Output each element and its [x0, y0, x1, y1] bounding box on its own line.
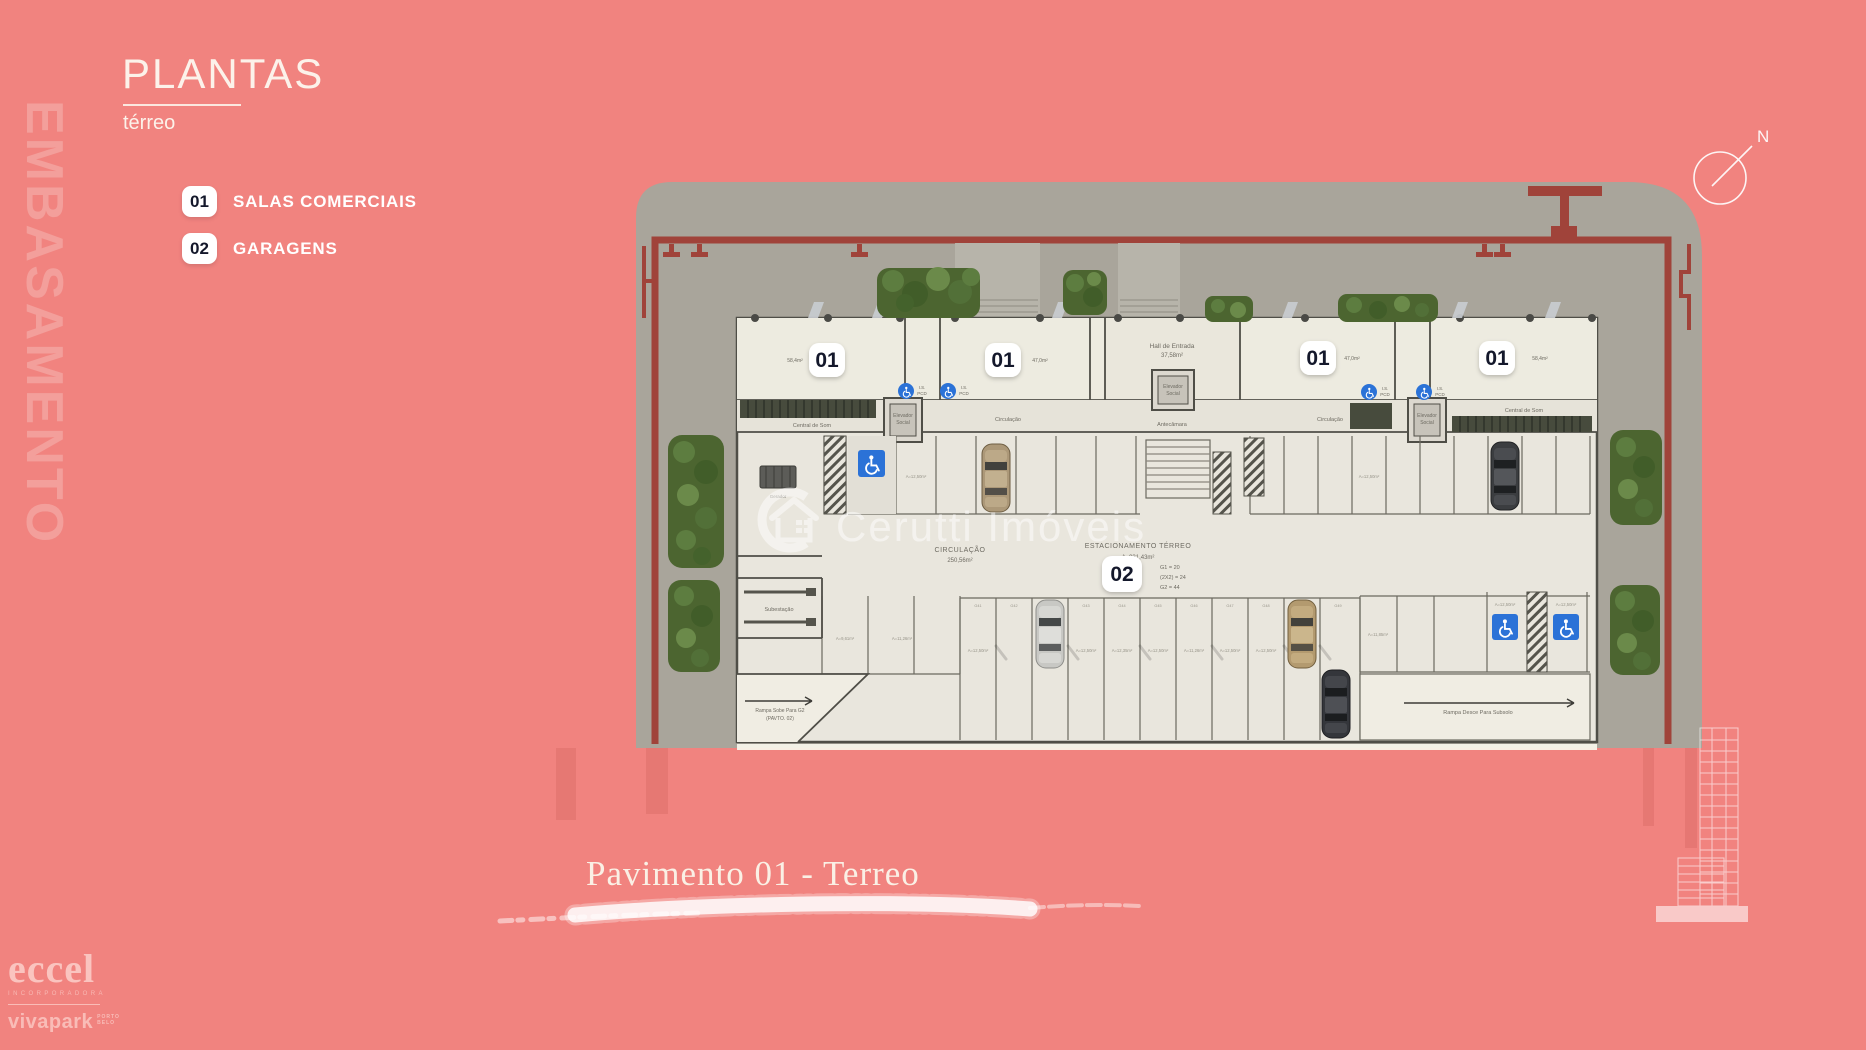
- generator-equipment: [760, 466, 796, 488]
- building-base-highlight: [737, 744, 1597, 750]
- foundation-pillars: [556, 748, 1697, 848]
- vivapark-wordmark: vivapark: [8, 1011, 93, 1034]
- plan-caption: Pavimento 01 - Terreo: [586, 854, 920, 894]
- svg-text:58,4m²: 58,4m²: [1532, 356, 1548, 362]
- svg-text:Antecâmara: Antecâmara: [1157, 422, 1188, 428]
- caption-brush-stroke: [500, 904, 1140, 921]
- svg-text:G42: G42: [1010, 604, 1017, 608]
- svg-text:PCD: PCD: [917, 391, 927, 396]
- svg-text:250,56m²: 250,56m²: [947, 558, 972, 564]
- vivapark-location: PORTO BELO: [97, 1014, 120, 1026]
- plantas-page: EMBASAMENTO PLANTAS térreo 01 SALAS COME…: [0, 0, 1866, 1050]
- car: [1491, 442, 1519, 510]
- branding-block: eccel INCORPORADORA vivapark PORTO BELO: [8, 950, 118, 1034]
- ramp-down: [1360, 674, 1590, 740]
- svg-text:G2 = 44: G2 = 44: [1160, 585, 1180, 591]
- svg-text:58,4m²: 58,4m²: [787, 358, 803, 364]
- svg-text:Elevador: Elevador: [1163, 384, 1183, 390]
- svg-text:A=12,50m²: A=12,50m²: [1359, 474, 1380, 479]
- svg-text:47,0m²: 47,0m²: [1032, 358, 1048, 364]
- svg-text:47,0m²: 47,0m²: [1344, 356, 1360, 362]
- svg-text:Elevador: Elevador: [1417, 413, 1437, 419]
- svg-text:G43: G43: [1082, 604, 1089, 608]
- svg-text:Social: Social: [1166, 391, 1180, 397]
- svg-text:A=12,50m²: A=12,50m²: [1220, 648, 1241, 653]
- car: [1322, 670, 1350, 738]
- svg-text:(PAVTO. 02): (PAVTO. 02): [766, 716, 794, 722]
- unit-badge-01: 01: [1485, 347, 1509, 370]
- svg-text:Circulação: Circulação: [1317, 417, 1343, 423]
- svg-text:G47: G47: [1226, 604, 1233, 608]
- svg-text:Hall de Entrada: Hall de Entrada: [1150, 343, 1195, 350]
- svg-text:G44: G44: [1118, 604, 1125, 608]
- compass-icon: N: [1694, 127, 1769, 204]
- svg-text:A=11,26m²: A=11,26m²: [1184, 648, 1205, 653]
- svg-text:PCD: PCD: [1380, 392, 1390, 397]
- svg-text:Rampa Sobe Para G2: Rampa Sobe Para G2: [755, 708, 804, 714]
- svg-text:I.S.: I.S.: [1437, 386, 1444, 391]
- svg-text:G1 = 20: G1 = 20: [1160, 565, 1180, 571]
- floor-plan: Hall de Entrada 37,58m² Elevador Social …: [0, 0, 1866, 1050]
- svg-text:Subestação: Subestação: [764, 607, 793, 613]
- svg-text:G46: G46: [1190, 604, 1197, 608]
- vivapark-logo: vivapark PORTO BELO: [8, 1011, 118, 1034]
- svg-text:A=12,50m²: A=12,50m²: [1076, 648, 1097, 653]
- tower-sketch: [1656, 728, 1748, 922]
- svg-text:Rampa Desce Para Subsolo: Rampa Desce Para Subsolo: [1443, 710, 1512, 716]
- svg-text:A=12,50m²: A=12,50m²: [968, 648, 989, 653]
- eccel-tagline: INCORPORADORA: [8, 991, 118, 997]
- svg-text:G45: G45: [1154, 604, 1161, 608]
- svg-text:Central de Som: Central de Som: [793, 423, 832, 429]
- svg-text:A=12,50m²: A=12,50m²: [1256, 648, 1277, 653]
- svg-text:I.S.: I.S.: [919, 385, 926, 390]
- eccel-logo: eccel: [8, 950, 118, 988]
- compass-north-label: N: [1757, 127, 1769, 146]
- svg-text:Social: Social: [896, 420, 910, 426]
- svg-text:A=12,35m²: A=12,35m²: [1112, 648, 1133, 653]
- car: [1036, 600, 1064, 668]
- brand-divider: [8, 1004, 100, 1005]
- svg-text:A=12,50m²: A=12,50m²: [1148, 648, 1169, 653]
- svg-text:Central de Som: Central de Som: [1505, 408, 1544, 414]
- garage-badge-02: 02: [1110, 563, 1133, 586]
- unit-badge-01: 01: [1306, 347, 1330, 370]
- svg-text:G48: G48: [1262, 604, 1269, 608]
- svg-text:A=11,26m²: A=11,26m²: [892, 636, 913, 641]
- svg-text:A=11,85m²: A=11,85m²: [1368, 632, 1389, 637]
- svg-text:Social: Social: [1420, 420, 1434, 426]
- car: [1288, 600, 1316, 668]
- svg-text:37,58m²: 37,58m²: [1161, 353, 1183, 359]
- svg-text:A=9,61m²: A=9,61m²: [836, 636, 855, 641]
- svg-text:A=12,50m²: A=12,50m²: [1556, 602, 1577, 607]
- svg-text:PCD: PCD: [959, 391, 969, 396]
- svg-text:A=12,50m²: A=12,50m²: [1495, 602, 1516, 607]
- svg-text:G49: G49: [1334, 604, 1341, 608]
- svg-text:Circulação: Circulação: [995, 417, 1021, 423]
- svg-text:I.S.: I.S.: [1382, 386, 1389, 391]
- unit-badge-01: 01: [815, 349, 839, 372]
- svg-text:A=12,50m²: A=12,50m²: [906, 474, 927, 479]
- svg-text:G41: G41: [974, 604, 981, 608]
- car: [982, 444, 1010, 512]
- svg-text:I.S.: I.S.: [961, 385, 968, 390]
- vivapark-location-line2: BELO: [97, 1020, 115, 1026]
- cerutti-watermark-text: Cerutti Imóveis: [836, 503, 1146, 550]
- svg-text:PCD: PCD: [1435, 392, 1445, 397]
- unit-badge-01: 01: [991, 349, 1015, 372]
- svg-text:(2X2) = 24: (2X2) = 24: [1160, 575, 1186, 581]
- svg-text:Elevador: Elevador: [893, 413, 913, 419]
